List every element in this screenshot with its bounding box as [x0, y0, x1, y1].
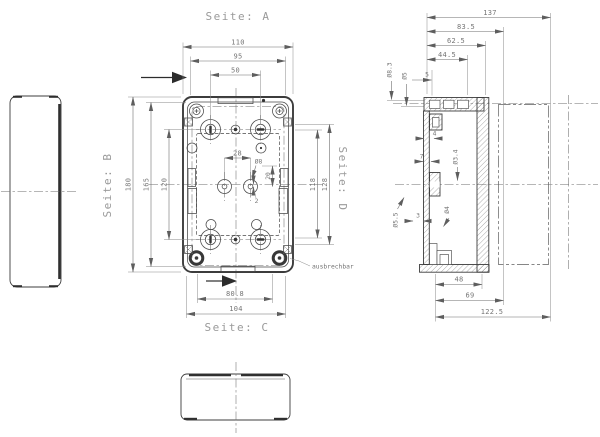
dim-69: 69 [465, 292, 474, 300]
label-diameter-8: Ø8 [255, 158, 263, 166]
bottom-wall-section [420, 265, 490, 273]
dim-2: 2 [255, 198, 259, 205]
main-view-dimensions: 110 95 50 180 165 120 118 128 28 Ø8 20 [125, 39, 354, 319]
dim-128: 128 [321, 178, 329, 192]
dim-3: 3 [416, 213, 420, 220]
side-view-bottom [181, 362, 290, 433]
dim-7: 7 [420, 154, 424, 161]
title-seite-c: Seite: C [205, 321, 270, 334]
dim-137: 137 [483, 9, 497, 17]
section-dimensions: 137 83.5 62.5 44.5 5 Ø8.3 Ø5 4 7 Ø3.4 Ø5… [386, 9, 551, 322]
dim-95: 95 [233, 53, 242, 61]
dim-118: 118 [309, 178, 317, 192]
title-seite-a: Seite: A [206, 10, 271, 23]
side-view-left [1, 96, 76, 287]
dim-28: 28 [233, 150, 242, 158]
dim-110: 110 [231, 39, 245, 47]
top-breakout-slot [218, 98, 253, 104]
label-diameter-3-4: Ø3.4 [452, 149, 460, 164]
right-wall-section [477, 98, 489, 273]
dim-44-5: 44.5 [438, 51, 456, 59]
label-diameter-5: Ø5 [401, 72, 409, 80]
section-view [387, 95, 598, 272]
center-bosses [218, 172, 258, 201]
dim-20: 20 [265, 172, 272, 180]
dim-83-5: 83.5 [457, 23, 475, 31]
technical-drawing-enclosure: 110 95 50 180 165 120 118 128 28 Ø8 20 [0, 0, 600, 437]
title-seite-d: Seite: D [336, 147, 349, 212]
dim-48: 48 [454, 276, 463, 284]
dim-122-5: 122.5 [481, 308, 504, 316]
view-direction-arrow-bottom [206, 275, 237, 286]
view-direction-arrow-top [141, 72, 187, 83]
label-diameter-4: Ø4 [443, 206, 451, 214]
pilot-domes [187, 143, 266, 230]
side-latches [188, 169, 288, 214]
dim-80-8: 80.8 [226, 290, 244, 298]
label-ausbrechbar: ausbrechbar [312, 264, 354, 271]
title-seite-b: Seite: B [101, 153, 114, 218]
dim-62-5: 62.5 [447, 37, 465, 45]
foot-section [430, 244, 438, 265]
left-wall-section [424, 111, 430, 265]
drawing-canvas: 110 95 50 180 165 120 118 128 28 Ø8 20 [0, 0, 600, 437]
dim-5: 5 [425, 72, 429, 79]
dim-4: 4 [433, 131, 437, 138]
dim-180: 180 [125, 178, 133, 192]
label-diameter-8-3: Ø8.3 [386, 62, 394, 77]
label-diameter-5-5: Ø5.5 [392, 212, 400, 227]
dim-104: 104 [229, 305, 243, 313]
dim-120: 120 [161, 178, 169, 192]
dim-165: 165 [143, 178, 151, 192]
dim-50: 50 [231, 67, 240, 75]
